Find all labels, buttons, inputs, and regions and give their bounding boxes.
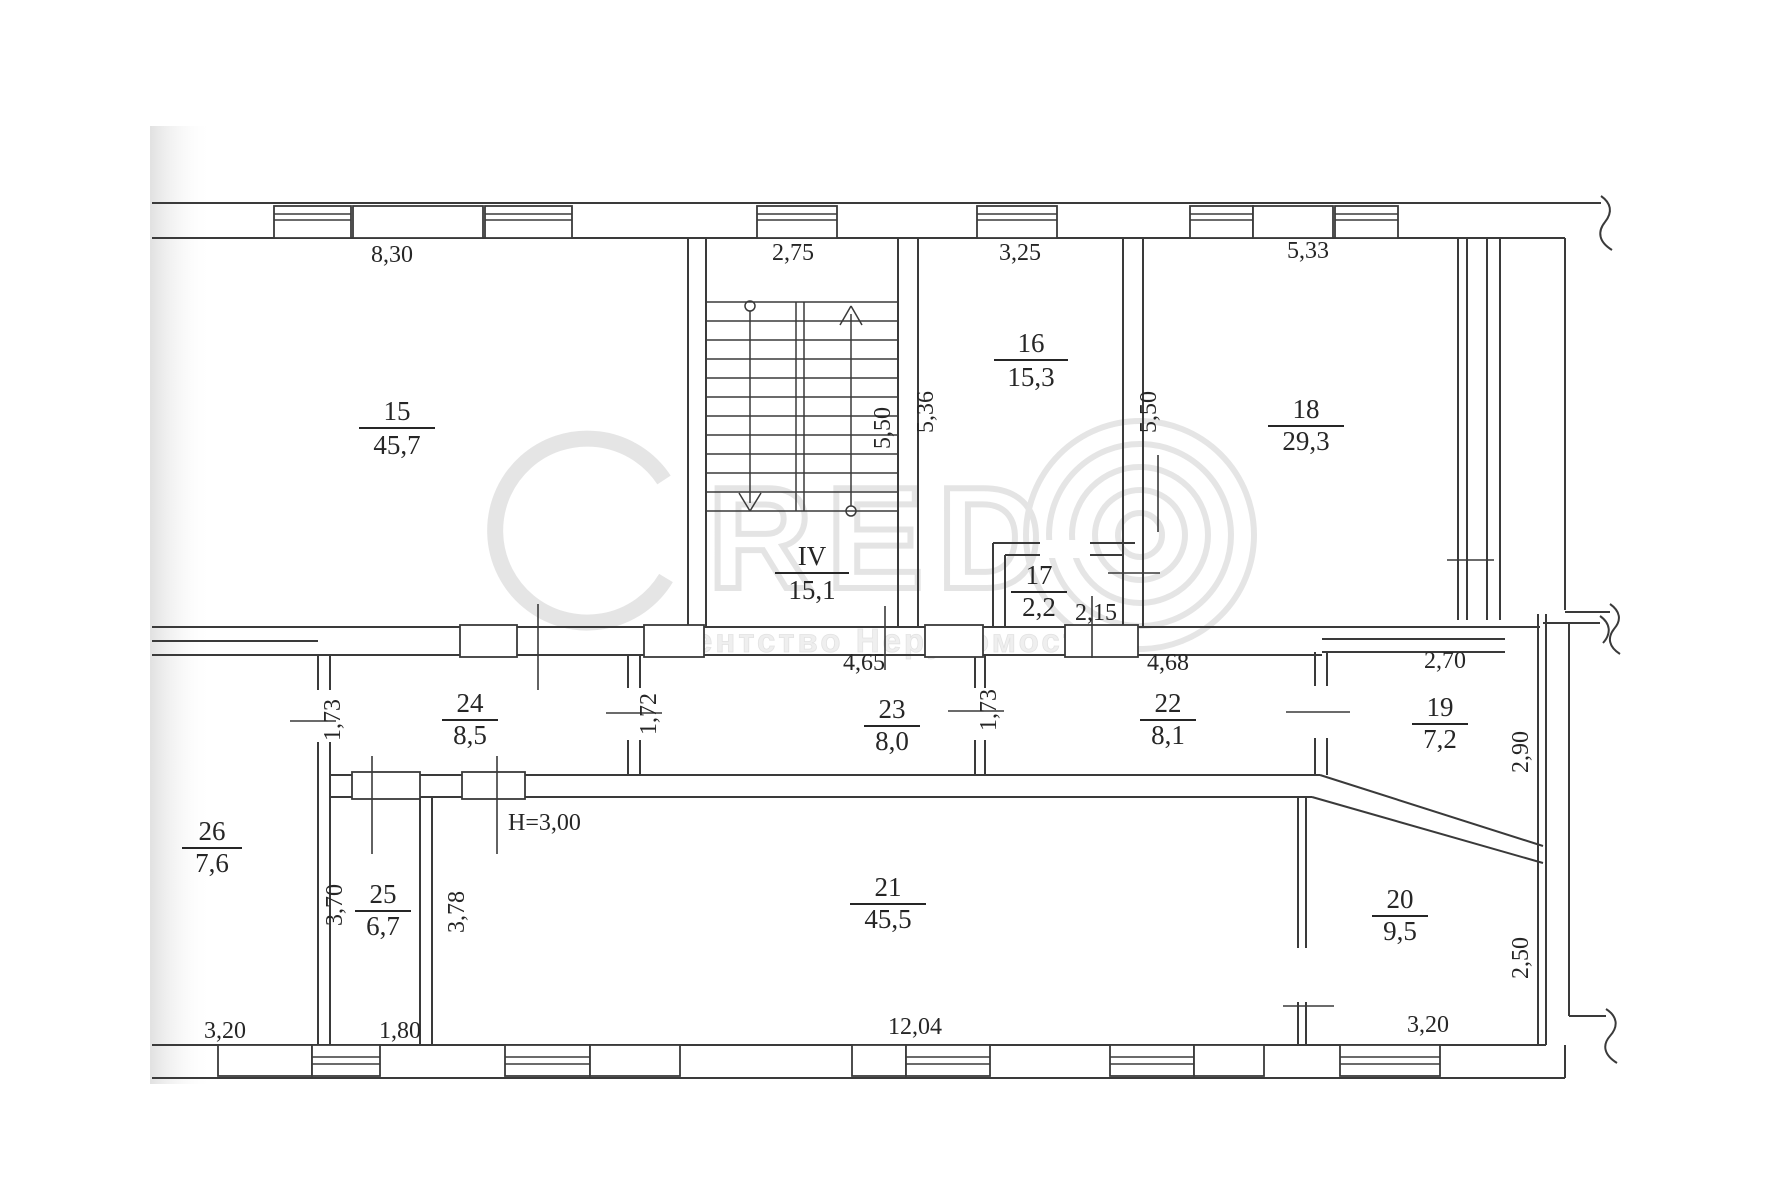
room-25-area: 6,7 [366, 911, 400, 941]
dim-room24-height: 1,73 [320, 699, 346, 741]
room-23-area: 8,0 [875, 726, 909, 756]
room-20-number: 20 [1387, 884, 1414, 914]
room-19-number: 19 [1427, 692, 1454, 722]
dim-room18-depth: 5,50 [1136, 391, 1162, 433]
room-18-number: 18 [1293, 394, 1320, 424]
room-21-area: 45,5 [864, 904, 911, 934]
room-25-number: 25 [370, 879, 397, 909]
dim-room20-width: 3,20 [1407, 1012, 1449, 1038]
room-15-number: 15 [384, 396, 411, 426]
room-26-number: 26 [199, 816, 226, 846]
dim-room18-width: 5,33 [1287, 238, 1329, 264]
dim-room22-height: 1,73 [976, 689, 1002, 731]
dim-room25-height: 3,70 [322, 884, 348, 926]
dim-room22-width: 4,68 [1147, 650, 1189, 676]
dim-room23-width: 4,65 [843, 650, 885, 676]
room-24-number: 24 [457, 688, 485, 718]
dim-room20-height: 2,50 [1508, 937, 1534, 979]
dim-room15-width: 8,30 [371, 242, 413, 268]
scanned-floor-plan-page: RED агентство Нерухомості [0, 0, 1772, 1181]
dim-room26-width: 3,20 [204, 1018, 246, 1044]
room-iv-area: 15,1 [788, 575, 835, 605]
dim-room25-width: 1,80 [379, 1018, 421, 1044]
room-20-area: 9,5 [1383, 916, 1417, 946]
room-19-area: 7,2 [1423, 724, 1457, 754]
room-iv-number: IV [798, 541, 827, 571]
dim-room16-width: 3,25 [999, 240, 1041, 266]
room-24-area: 8,5 [453, 720, 487, 750]
dim-stair-depth: 5,50 [870, 407, 896, 449]
dim-room21-width: 12,04 [888, 1014, 942, 1040]
scan-edge-shadow [150, 126, 212, 1084]
room-22-number: 22 [1155, 688, 1182, 718]
room-18-area: 29,3 [1282, 426, 1329, 456]
dim-opening-17: 2,15 [1075, 600, 1117, 626]
room-17-number: 17 [1026, 560, 1053, 590]
room-15-area: 45,7 [373, 430, 420, 460]
floor-plan-svg: RED агентство Нерухомості [0, 0, 1772, 1181]
room-16-area: 15,3 [1007, 362, 1054, 392]
room-26-area: 7,6 [195, 848, 229, 878]
dim-room21-height: 3,78 [444, 891, 470, 933]
top-wall-windows [274, 206, 1398, 238]
ceiling-height-note: H=3,00 [508, 810, 581, 836]
dim-stair-width: 2,75 [772, 240, 814, 266]
dim-room16-depth: 5,36 [913, 391, 939, 433]
room-17-area: 2,2 [1022, 592, 1056, 622]
watermark-letters: RED [708, 457, 1056, 619]
room-23-number: 23 [879, 694, 906, 724]
room-22-area: 8,1 [1151, 720, 1185, 750]
dim-room19-height: 2,90 [1508, 731, 1534, 773]
room-16-number: 16 [1018, 328, 1045, 358]
room-21-number: 21 [875, 872, 902, 902]
dim-room23-height: 1,72 [636, 693, 662, 735]
dim-room19-width: 2,70 [1424, 648, 1466, 674]
